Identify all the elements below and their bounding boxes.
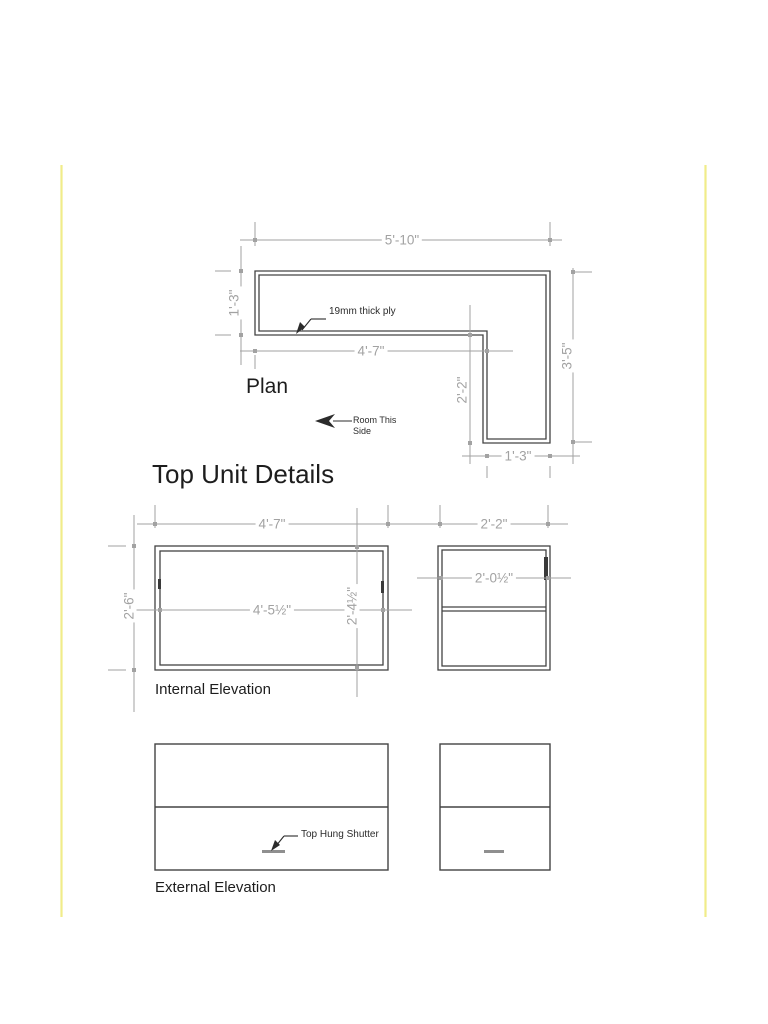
plan-dim-right-height: 3'-5" <box>560 340 575 373</box>
plan-dim-inner-width: 4'-7" <box>355 344 388 359</box>
internal-dim-left-opening-width: 4'-5½" <box>250 603 294 618</box>
internal-dim-opening-height: 2'-4½" <box>345 584 360 628</box>
plan-dim-leg-depth: 2'-2" <box>455 374 470 407</box>
ply-note-leader <box>296 319 326 334</box>
room-side-arrow <box>315 414 352 428</box>
room-note-line1: Room This <box>353 415 396 426</box>
plan-outline <box>255 271 550 443</box>
drawing-canvas <box>0 0 768 1024</box>
internal-dim-unit-height: 2'-6" <box>122 590 137 623</box>
internal-dim-left-unit-width: 4'-7" <box>256 517 289 532</box>
room-this-side-note: Room This Side <box>353 415 396 437</box>
internal-elevation-label: Internal Elevation <box>155 681 271 698</box>
external-elevation-outline <box>155 744 550 870</box>
internal-dim-right-opening-width: 2'-0½" <box>472 571 516 586</box>
room-note-line2: Side <box>353 426 396 437</box>
shutter-note-leader <box>271 836 298 851</box>
plan-view-label: Plan <box>246 375 288 399</box>
plan-dim-left-depth: 1'-3" <box>227 287 242 320</box>
page-title: Top Unit Details <box>152 459 334 490</box>
ply-note: 19mm thick ply <box>328 306 397 317</box>
external-elevation-label: External Elevation <box>155 879 276 896</box>
scanned-drawing-page: Top Unit Details 5'-10" 1'-3" 4'-7" 2'-2… <box>0 0 768 1024</box>
plan-dim-leg-width: 1'-3" <box>502 449 535 464</box>
internal-dim-right-unit-width: 2'-2" <box>478 517 511 532</box>
plan-dim-top-width: 5'-10" <box>382 233 422 248</box>
page-edge-lines <box>62 165 706 917</box>
shutter-note: Top Hung Shutter <box>300 829 380 840</box>
